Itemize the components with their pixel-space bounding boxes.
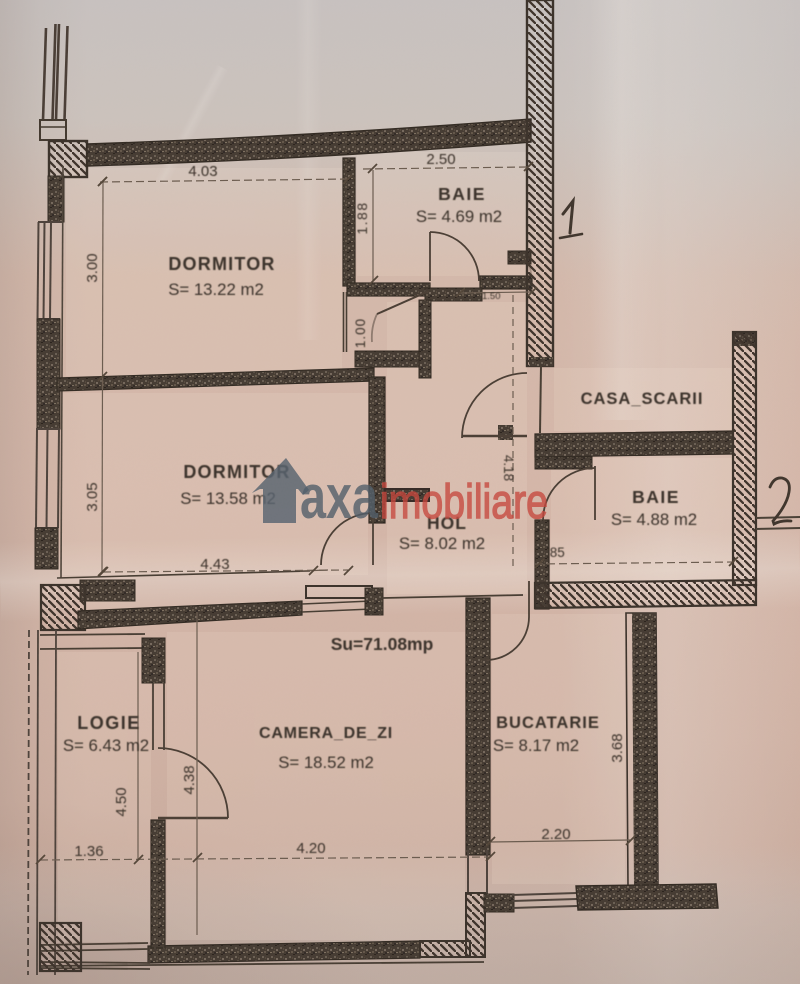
svg-text:S= 8.02 m2: S= 8.02 m2	[399, 534, 485, 553]
svg-text:S= 18.52 m2: S= 18.52 m2	[278, 753, 374, 772]
svg-text:S= 4.69 m2: S= 4.69 m2	[416, 207, 502, 226]
svg-text:2.20: 2.20	[541, 826, 570, 843]
svg-text:.85: .85	[546, 545, 565, 560]
svg-text:1.00: 1.00	[353, 318, 368, 348]
svg-text:4.43: 4.43	[200, 556, 229, 573]
svg-text:S= 6.43 m2: S= 6.43 m2	[63, 736, 149, 755]
svg-text:1.50: 1.50	[482, 291, 501, 302]
svg-text:3.68: 3.68	[609, 733, 626, 762]
svg-text:CASA_SCARII: CASA_SCARII	[581, 390, 704, 408]
svg-text:DORMITOR: DORMITOR	[168, 254, 275, 274]
svg-text:2.50: 2.50	[426, 151, 455, 168]
svg-text:S= 4.88 m2: S= 4.88 m2	[611, 510, 697, 529]
svg-text:4.20: 4.20	[296, 840, 325, 857]
svg-text:CAMERA_DE_ZI: CAMERA_DE_ZI	[259, 725, 393, 742]
svg-text:axa: axa	[300, 463, 378, 532]
svg-text:3.05: 3.05	[84, 482, 101, 511]
svg-text:1.88: 1.88	[354, 201, 370, 234]
svg-text:BAIE: BAIE	[438, 184, 486, 204]
svg-text:4.03: 4.03	[188, 163, 217, 180]
svg-text:Su=71.08mp: Su=71.08mp	[331, 634, 434, 654]
svg-text:imobiliare: imobiliare	[380, 476, 548, 529]
svg-text:4.38: 4.38	[181, 765, 198, 794]
svg-text:S= 8.17 m2: S= 8.17 m2	[493, 736, 579, 755]
svg-text:LOGIE: LOGIE	[77, 713, 141, 733]
svg-text:S= 13.58 m2: S= 13.58 m2	[180, 489, 276, 508]
svg-text:1.36: 1.36	[74, 843, 103, 860]
svg-text:4.50: 4.50	[113, 787, 130, 816]
svg-text:3.00: 3.00	[84, 253, 101, 282]
svg-text:BAIE: BAIE	[632, 487, 680, 507]
svg-text:BUCATARIE: BUCATARIE	[496, 714, 600, 732]
svg-text:S= 13.22 m2: S= 13.22 m2	[168, 280, 264, 299]
